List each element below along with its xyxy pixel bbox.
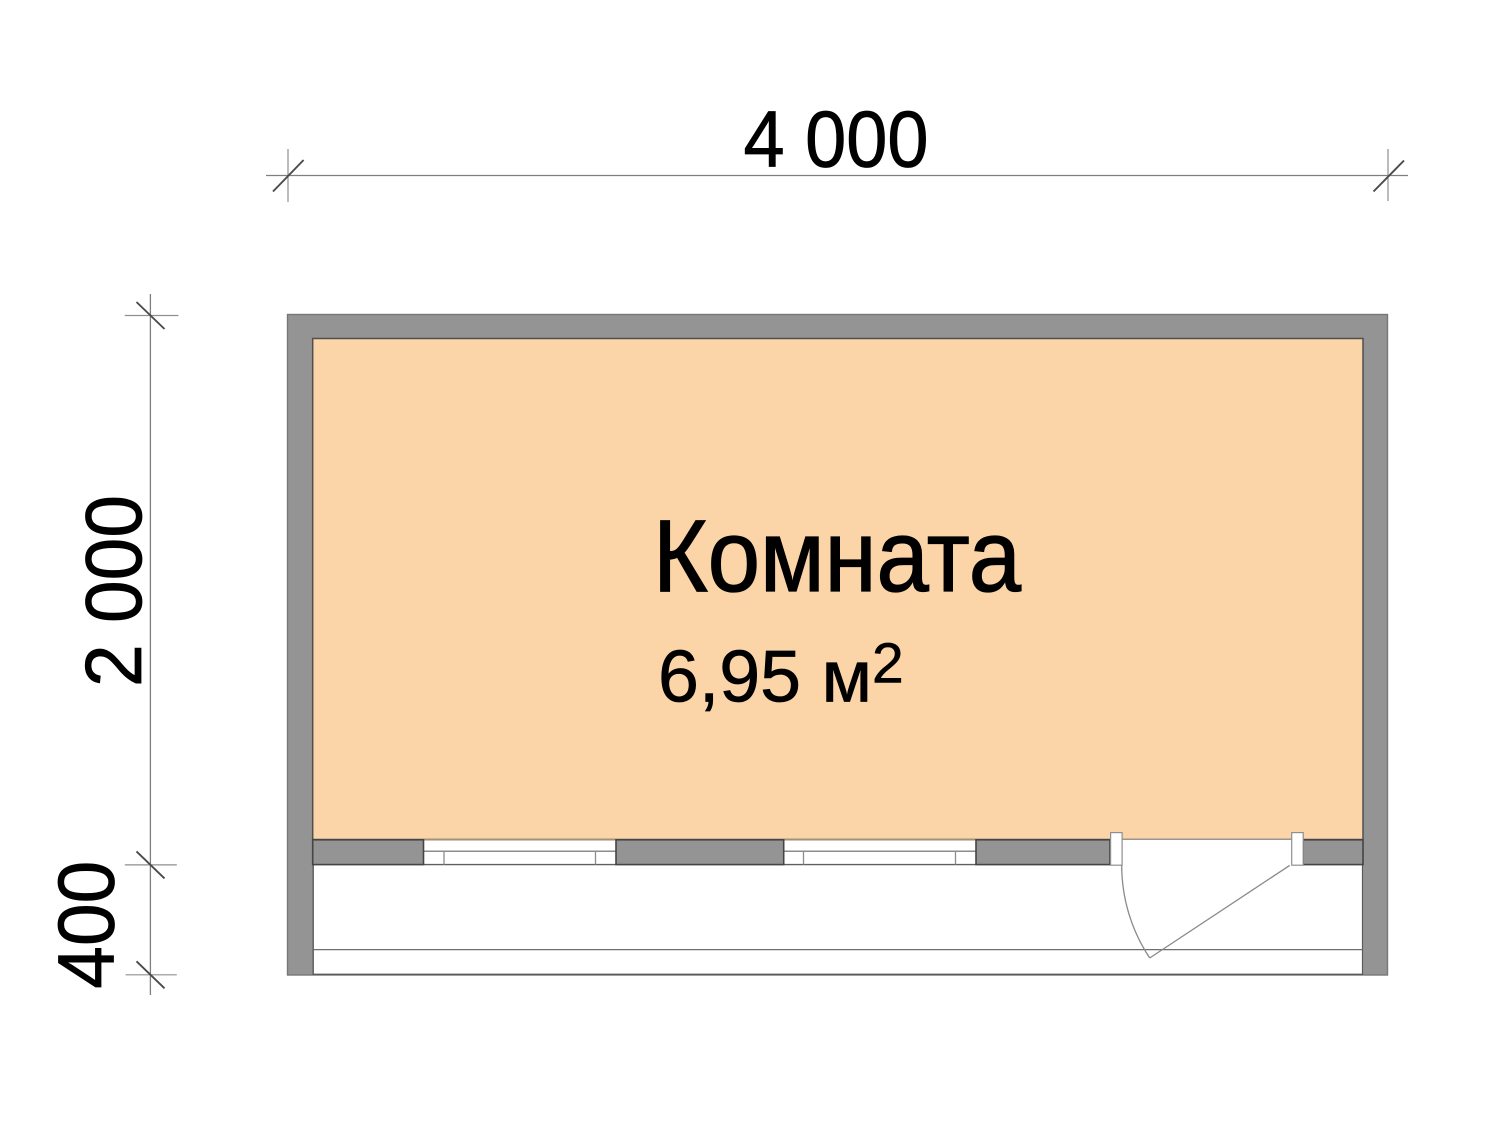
svg-text:4 000: 4 000 <box>744 95 929 184</box>
svg-text:6,95 м: 6,95 м <box>658 637 872 718</box>
svg-text:2: 2 <box>872 632 904 696</box>
svg-text:2 000: 2 000 <box>69 495 158 687</box>
svg-text:400: 400 <box>42 861 131 989</box>
svg-text:Комната: Комната <box>653 499 1021 613</box>
